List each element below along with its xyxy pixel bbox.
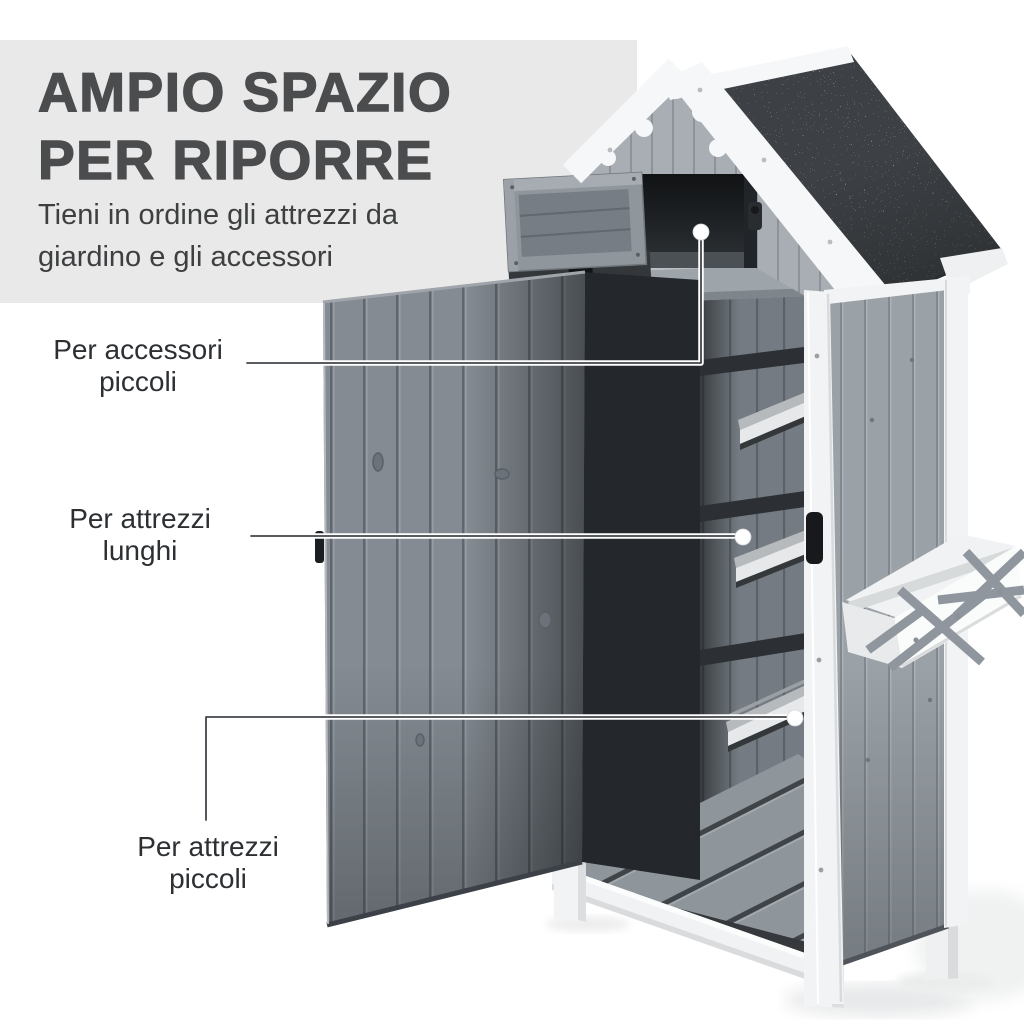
open-door: [315, 272, 700, 925]
title-panel: [0, 40, 637, 303]
ground-shadows: [546, 890, 1024, 1016]
right-side-panel: [824, 276, 970, 968]
interior-rail-middle: [700, 490, 812, 522]
callout-leader-lines: [206, 224, 803, 820]
middle-shelf: [734, 530, 806, 588]
roof-asphalt-panel: [696, 50, 1002, 312]
side-top-rail: [824, 276, 970, 308]
back-right-leg: [926, 886, 958, 980]
right-fascia: [666, 62, 914, 344]
front-bottom-rail: [552, 864, 842, 992]
top-storage-compartment: [639, 174, 757, 268]
interior-rail-top: [700, 346, 812, 376]
front-right-post: [804, 290, 844, 1004]
front-right-leg: [804, 946, 844, 1008]
planter-left-cap: [842, 602, 902, 668]
interior-back-wall: [700, 296, 812, 880]
top-shelf: [738, 392, 806, 450]
roof-screws: [608, 88, 883, 321]
bottom-shelf: [726, 679, 808, 752]
cabinet-floor: [566, 754, 822, 946]
door-edge-handle: [315, 531, 324, 563]
leader-line-3: [206, 710, 803, 820]
front-left-leg: [554, 856, 586, 922]
door-knots: [373, 453, 551, 746]
base-frame: [552, 856, 958, 1008]
back-right-post: [944, 276, 968, 928]
roof-ridge-cap: [664, 46, 854, 100]
callout-label-long-tools: Per attrezzi lunghi: [32, 503, 248, 567]
planter-interior: [846, 534, 1016, 618]
roof-eave-underside: [940, 248, 1008, 292]
interior-rail-bottom: [700, 632, 812, 666]
side-planter-box: [842, 534, 1024, 668]
planter-front: [894, 546, 1022, 668]
callout-label-small-accessories: Per accessori piccoli: [30, 334, 246, 398]
compartment-latch: [748, 202, 762, 230]
planter-lattice: [868, 552, 1024, 668]
roof: [572, 46, 1008, 344]
leader-dot-3: [787, 710, 803, 726]
callout-label-small-tools: Per attrezzi piccoli: [100, 831, 316, 895]
leader-dot-1: [693, 224, 709, 240]
leader-line-2: [251, 529, 751, 545]
leader-dot-2: [735, 529, 751, 545]
cabinet-interior: [555, 268, 812, 960]
product-feature-page: AMPIO SPAZIO PER RIPORRE Tieni in ordine…: [0, 0, 1024, 1024]
side-screws: [866, 358, 932, 762]
door-latch-handle: [806, 512, 823, 564]
